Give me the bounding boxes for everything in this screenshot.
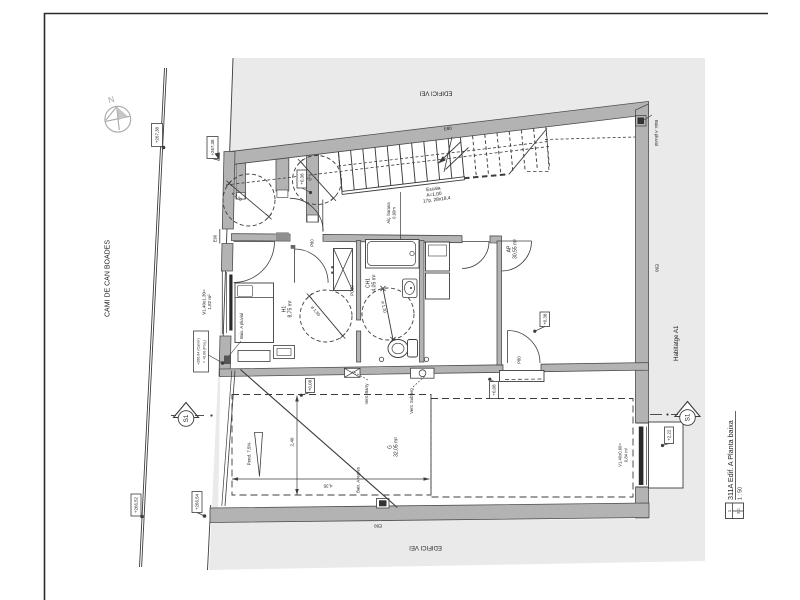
svg-text:8,75 m²: 8,75 m²: [288, 300, 294, 317]
svg-text:= +0,00 (Proj.): = +0,00 (Proj.): [202, 340, 206, 363]
svg-text:P80: P80: [517, 356, 522, 364]
svg-text:Baix. A pluvial: Baix. A pluvial: [654, 120, 659, 146]
svg-text:+267,38: +267,38: [155, 126, 160, 143]
svg-text:1,82 m²: 1,82 m²: [207, 294, 212, 310]
svg-text:30,55 m²: 30,55 m²: [513, 239, 519, 259]
svg-text:+0,38: +0,38: [299, 173, 304, 185]
svg-text:Pend. 7,5%: Pend. 7,5%: [247, 443, 252, 466]
svg-text:EDIFICI VEI: EDIFICI VEI: [409, 544, 442, 550]
svg-text:+266,52: +266,52: [134, 496, 139, 513]
svg-text:S1: S1: [685, 413, 692, 421]
svg-text:S1: S1: [183, 414, 190, 422]
svg-text:E80: E80: [655, 264, 660, 272]
svg-text:1 : 50: 1 : 50: [738, 487, 744, 500]
svg-text:311: 311: [737, 508, 741, 514]
svg-text:+0,08: +0,08: [492, 384, 497, 396]
svg-text:Vent. Barry: Vent. Barry: [364, 383, 369, 405]
svg-text:+0,38: +0,38: [542, 313, 547, 325]
svg-text:V1.40x1.30=: V1.40x1.30=: [202, 289, 207, 315]
svg-text:E80: E80: [374, 524, 382, 529]
svg-text:+267,35: +267,35: [210, 139, 215, 156]
svg-text:EDIFICI VEI: EDIFICI VEI: [419, 90, 452, 96]
svg-text:P80: P80: [310, 239, 315, 247]
svg-text:V1.40x0.60=: V1.40x0.60=: [618, 443, 623, 467]
svg-text:311A Edif. A Planta baixa: 311A Edif. A Planta baixa: [726, 420, 735, 500]
svg-text:4,35: 4,35: [323, 484, 332, 489]
svg-text:Alç. barana: Alç. barana: [386, 202, 391, 224]
svg-text:+266,94 (Carrer): +266,94 (Carrer): [196, 338, 200, 365]
svg-text:E80: E80: [444, 126, 453, 132]
svg-text:+0,08: +0,08: [308, 379, 313, 391]
svg-text:0,90m: 0,90m: [392, 207, 397, 219]
svg-text:+2,22: +2,22: [667, 429, 672, 441]
svg-text:4,05 m²: 4,05 m²: [372, 274, 378, 291]
svg-text:32,05 m²: 32,05 m²: [394, 437, 400, 457]
svg-text:+266,54: +266,54: [195, 493, 200, 510]
svg-text:0,84 m²: 0,84 m²: [624, 447, 629, 462]
svg-text:PC80: PC80: [350, 285, 355, 296]
svg-text:Habitatge A1: Habitatge A1: [673, 325, 680, 361]
svg-text:Vent. Subterg: Vent. Subterg: [409, 388, 414, 414]
svg-text:CAMI DE CAN BOADES: CAMI DE CAN BOADES: [105, 240, 112, 317]
svg-text:2,40: 2,40: [290, 437, 295, 446]
svg-text:E90: E90: [213, 234, 218, 242]
svg-text:Baix. A pluvial: Baix. A pluvial: [239, 313, 244, 339]
svg-text:Baix. A regres: Baix. A regres: [356, 467, 361, 493]
